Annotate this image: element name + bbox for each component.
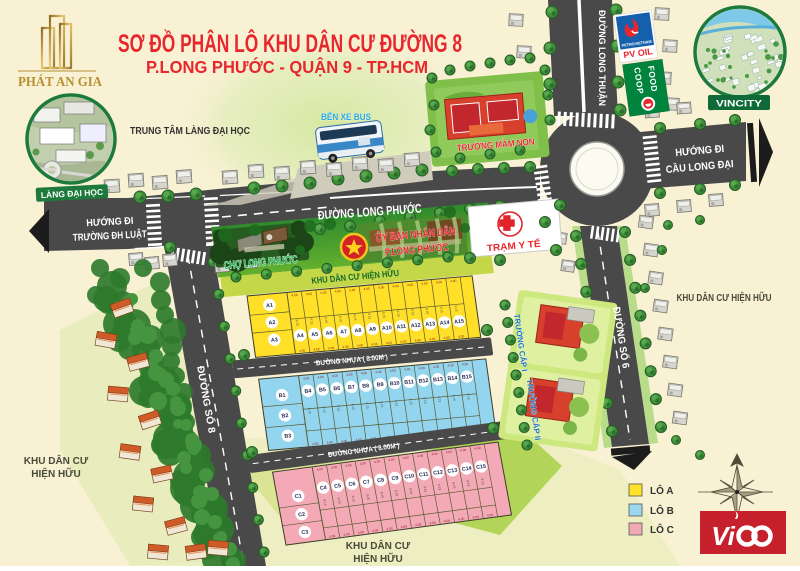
svg-text:B6: B6 [333,386,341,393]
svg-text:P.LONG PHƯỚC - QUẬN 9 - TP.HCM: P.LONG PHƯỚC - QUẬN 9 - TP.HCM [146,56,428,77]
svg-text:4.00: 4.00 [359,461,366,466]
svg-text:4.00: 4.00 [371,342,378,347]
svg-text:B11: B11 [404,379,414,386]
svg-text:4.00: 4.00 [334,289,341,294]
svg-text:A13: A13 [425,321,436,328]
svg-text:A6: A6 [325,330,333,337]
svg-text:4.00: 4.00 [320,290,327,295]
svg-text:KHU DÂN CƯ: KHU DÂN CƯ [346,539,411,552]
svg-text:4.00: 4.00 [345,463,352,468]
svg-text:HIỆN HỮU: HIỆN HỮU [31,467,80,480]
svg-text:C8: C8 [377,477,385,484]
svg-text:C15: C15 [476,464,487,471]
svg-text:A11: A11 [396,324,406,331]
svg-text:4.00: 4.00 [458,334,465,339]
svg-text:TRUNG TÂM LÀNG ĐẠI HỌC: TRUNG TÂM LÀNG ĐẠI HỌC [130,124,250,137]
svg-text:LÔ C: LÔ C [650,523,674,536]
svg-text:4.00: 4.00 [375,370,382,375]
svg-text:SƠ ĐỒ PHÂN LÔ KHU DÂN CƯ ĐƯỜNG: SƠ ĐỒ PHÂN LÔ KHU DÂN CƯ ĐƯỜNG 8 [118,28,462,58]
svg-text:B13: B13 [433,377,444,384]
svg-text:4.00: 4.00 [313,347,320,352]
svg-text:B5: B5 [319,387,327,394]
svg-text:4.00: 4.00 [386,341,393,346]
svg-text:B3: B3 [284,433,292,440]
svg-text:4.00: 4.00 [357,530,364,535]
svg-text:4.00: 4.00 [374,459,381,464]
svg-text:A12: A12 [411,323,422,330]
svg-text:4.00: 4.00 [404,367,411,372]
svg-text:4.00: 4.00 [361,371,368,376]
svg-text:4.00: 4.00 [472,515,479,520]
svg-text:4.00: 4.00 [418,366,425,371]
svg-text:4.00: 4.00 [332,374,339,379]
svg-text:4.00: 4.00 [462,362,469,367]
svg-text:B9: B9 [376,382,384,389]
svg-text:4.00: 4.00 [372,528,379,533]
svg-text:C4: C4 [319,485,327,492]
svg-text:B10: B10 [389,381,400,388]
svg-text:C13: C13 [447,468,458,475]
svg-text:4.00: 4.00 [429,337,436,342]
svg-text:4.00: 4.00 [342,345,349,350]
svg-text:A14: A14 [439,320,450,327]
svg-text:4.00: 4.00 [443,336,450,341]
svg-text:C7: C7 [363,479,371,486]
svg-text:4.00: 4.00 [436,280,443,285]
svg-text:LÔ B: LÔ B [650,504,674,517]
svg-text:4.00: 4.00 [312,441,319,446]
svg-text:4.00: 4.00 [474,446,481,451]
svg-text:4.00: 4.00 [303,376,310,381]
svg-text:C14: C14 [461,466,472,473]
svg-text:4.00: 4.00 [329,534,336,539]
svg-text:B12: B12 [418,378,429,385]
svg-text:4.00: 4.00 [349,288,356,293]
svg-text:KHU DÂN CƯ HIỆN HỮU: KHU DÂN CƯ HIỆN HỮU [677,291,772,304]
svg-text:B14: B14 [447,375,458,382]
svg-text:4.00: 4.00 [487,513,494,518]
svg-text:4.00: 4.00 [316,467,323,472]
svg-text:4.00: 4.00 [433,365,440,370]
svg-text:4.00: 4.00 [343,532,350,537]
svg-text:Vi: Vi [711,521,735,551]
svg-text:A8: A8 [354,328,362,335]
svg-text:B8: B8 [362,383,370,390]
svg-text:4.00: 4.00 [400,339,407,344]
svg-text:C9: C9 [391,475,399,482]
svg-text:4.00: 4.00 [458,517,465,522]
svg-text:4.00: 4.00 [386,526,393,531]
svg-text:A15: A15 [454,319,465,326]
svg-text:C5: C5 [334,483,342,490]
svg-text:4.00: 4.00 [299,348,306,353]
svg-text:4.00: 4.00 [431,452,438,457]
svg-text:4.00: 4.00 [417,454,424,459]
svg-text:4.00: 4.00 [389,368,396,373]
svg-text:4.00: 4.00 [357,343,364,348]
svg-text:KHU DÂN CƯ: KHU DÂN CƯ [24,454,89,467]
svg-text:C11: C11 [419,471,430,478]
svg-text:C10: C10 [404,473,415,480]
svg-text:4.00: 4.00 [429,521,436,526]
svg-text:C6: C6 [348,481,356,488]
svg-text:4.00: 4.00 [415,522,422,527]
svg-text:4.00: 4.00 [407,283,414,288]
svg-text:B7: B7 [348,385,356,392]
svg-text:A7: A7 [340,329,348,336]
svg-text:A10: A10 [382,325,393,332]
svg-text:B4: B4 [304,388,312,395]
svg-text:4.00: 4.00 [392,284,399,289]
svg-text:A9: A9 [369,327,377,334]
svg-text:4.00: 4.00 [328,346,335,351]
svg-text:B1: B1 [278,393,286,400]
svg-text:LÔ A: LÔ A [650,484,674,497]
svg-text:4.00: 4.00 [414,338,421,343]
svg-text:4.00: 4.00 [402,455,409,460]
svg-text:B2: B2 [281,413,289,420]
svg-text:4.00: 4.00 [331,465,338,470]
svg-text:4.00: 4.00 [447,363,454,368]
svg-text:4.00: 4.00 [346,372,353,377]
svg-text:BẾN XE BUS: BẾN XE BUS [321,112,371,123]
svg-text:A2: A2 [268,320,276,327]
svg-text:B15: B15 [462,374,473,381]
svg-text:C12: C12 [433,470,444,477]
svg-text:C3: C3 [301,529,309,536]
svg-text:A1: A1 [266,303,274,310]
svg-text:HIỆN HỮU: HIỆN HỮU [353,552,402,565]
svg-text:A3: A3 [271,337,279,344]
svg-text:4.00: 4.00 [421,281,428,286]
svg-text:A5: A5 [311,332,319,339]
svg-text:PHÁT AN GIA: PHÁT AN GIA [18,74,102,89]
svg-text:4.00: 4.00 [388,457,395,462]
svg-text:4.00: 4.00 [445,450,452,455]
svg-text:ĐƯỜNG LONG THUẬN: ĐƯỜNG LONG THUẬN [596,10,608,106]
svg-text:A4: A4 [296,333,304,340]
svg-text:C1: C1 [294,493,302,500]
svg-text:4.00: 4.00 [317,375,324,380]
svg-text:4.00: 4.00 [306,292,313,297]
svg-text:4.00: 4.00 [378,285,385,290]
svg-text:C2: C2 [298,512,306,519]
svg-text:4.00: 4.00 [363,287,370,292]
svg-text:4.00: 4.00 [460,448,467,453]
svg-text:4.00: 4.00 [450,279,457,284]
svg-text:VINCITY: VINCITY [716,99,763,110]
svg-text:4.00: 4.00 [444,519,451,524]
svg-text:4.00: 4.00 [291,293,298,298]
svg-text:4.00: 4.00 [400,524,407,529]
